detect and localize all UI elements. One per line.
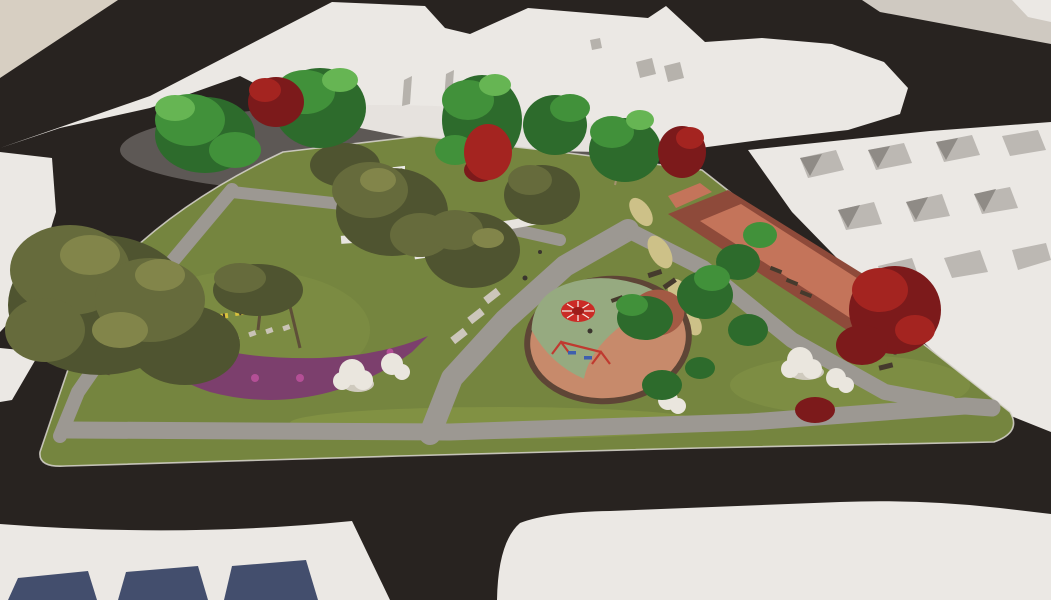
swing-seat [584, 356, 592, 360]
bottom-center-plaza [497, 501, 1051, 600]
park-render-image [0, 0, 1051, 600]
render-canvas [0, 0, 1051, 600]
swing-seat [568, 351, 576, 355]
playground-carousel [561, 300, 595, 322]
carousel-hub [572, 307, 584, 315]
